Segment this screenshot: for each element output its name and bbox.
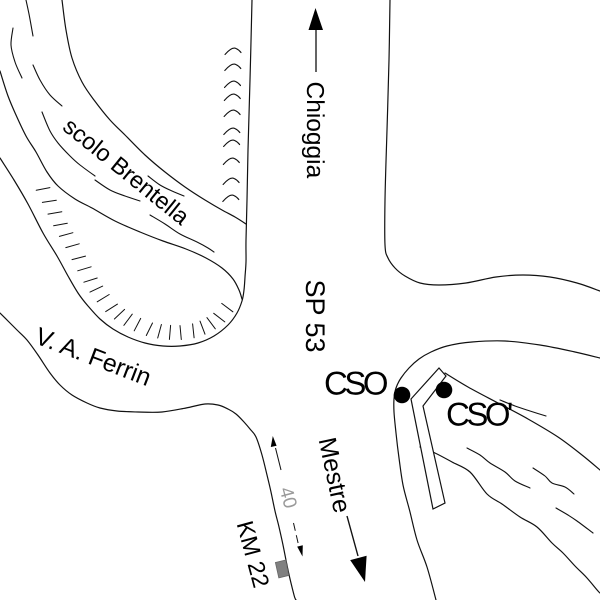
svg-text:KM 22: KM 22 xyxy=(232,518,275,590)
svg-text:CSO: CSO xyxy=(324,365,388,402)
svg-text:Chioggia: Chioggia xyxy=(301,82,328,179)
svg-text:scolo Brentella: scolo Brentella xyxy=(58,113,195,231)
svg-text:V. A. Ferrin: V. A. Ferrin xyxy=(31,323,154,392)
svg-text:CSO': CSO' xyxy=(446,396,512,433)
svg-text:Mestre: Mestre xyxy=(313,435,356,516)
svg-text:SP 53: SP 53 xyxy=(300,280,330,353)
svg-text:40: 40 xyxy=(275,485,301,511)
